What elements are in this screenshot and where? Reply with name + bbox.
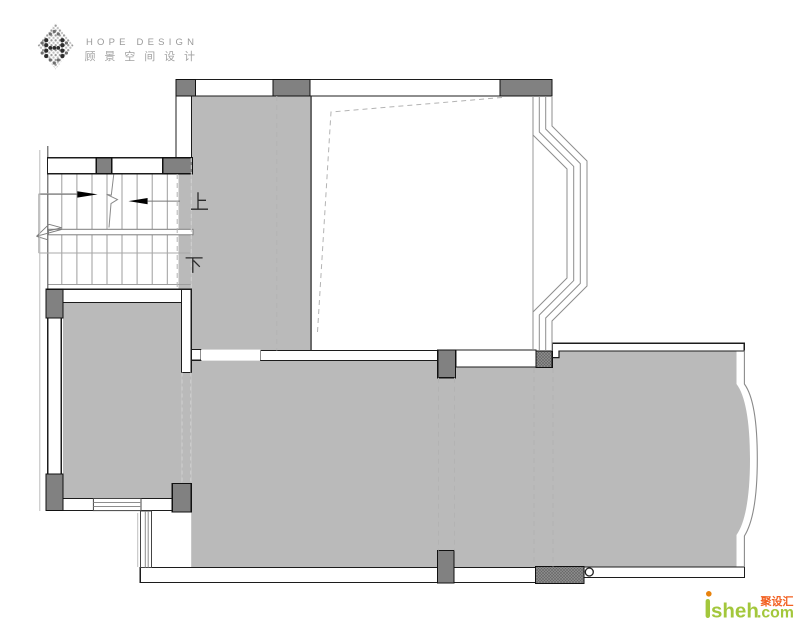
- svg-text:HOPE DESIGN: HOPE DESIGN: [86, 37, 198, 48]
- svg-text:顾景空间设计: 顾景空间设计: [85, 49, 204, 63]
- svg-text:聚设汇: 聚设汇: [760, 594, 794, 608]
- svg-text:sheh: sheh: [711, 600, 759, 619]
